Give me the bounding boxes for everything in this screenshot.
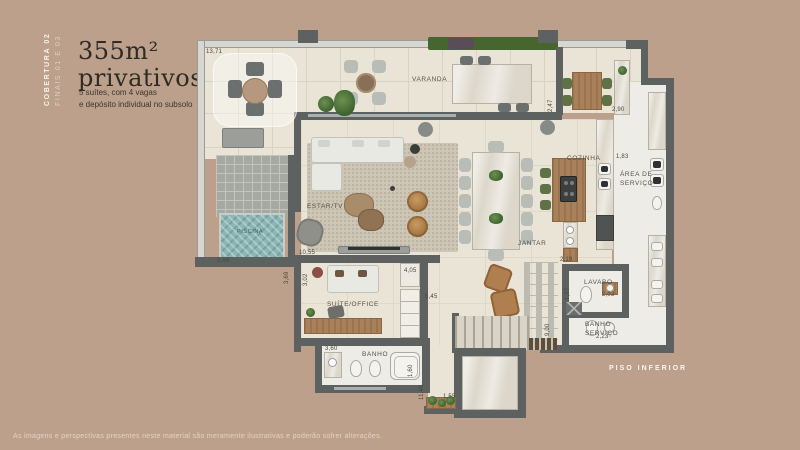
copa-plant: [618, 66, 627, 75]
breakfast-chair-4: [602, 95, 612, 106]
breakfast-chair-3: [602, 78, 612, 89]
potted-plant-1: [318, 96, 334, 112]
side-table: [404, 156, 416, 168]
dim-label: 5,45: [425, 294, 437, 300]
label-lavabo: LAVABO: [584, 279, 613, 286]
banho-sink: [328, 358, 337, 367]
black-pouf: [410, 144, 420, 154]
dim-label: 2,90: [612, 107, 624, 113]
dining-chair-head-n: [488, 141, 504, 153]
label-estar: ESTAR/TV: [307, 203, 343, 210]
lounge-table: [356, 73, 376, 93]
wall-topright-step-h: [641, 78, 668, 85]
dining-chair-l1: [459, 158, 471, 172]
servico-counter-top: [648, 92, 666, 150]
umbrella-chair-s: [246, 102, 264, 116]
wall-outer-top: [197, 40, 640, 48]
dim-label: 1,27: [565, 288, 571, 300]
dim-label: 2,19: [560, 257, 572, 263]
dim-label: 2,23: [596, 334, 608, 340]
lounge-chair-2: [372, 60, 386, 73]
label-area-servico-line2: SERVIÇO: [620, 180, 653, 189]
pool: [219, 213, 285, 259]
dim-label: 1,60: [408, 365, 414, 377]
cabinet-drawer-1: [651, 242, 663, 251]
dining-chair-l5: [459, 230, 471, 244]
suite-cabinet-upper: [400, 263, 420, 287]
bar-stool-4: [516, 103, 529, 112]
burner-1: [564, 181, 568, 185]
dryer-door: [653, 177, 661, 184]
page-title: 355m² privativos: [78, 38, 203, 92]
wall-entry-estar: [294, 112, 301, 212]
dim-label: 4,05: [404, 268, 416, 274]
table-plant-1: [489, 170, 503, 181]
wall-outer-right: [666, 78, 674, 348]
bottom-plant-1: [428, 396, 437, 405]
dim-label: 1,55: [443, 394, 455, 400]
bathtub-inner: [394, 356, 418, 378]
bar-stool-3: [498, 103, 511, 112]
oven-door-2: [601, 181, 608, 187]
toilet-icon: [350, 360, 362, 377]
burner-3: [564, 192, 568, 196]
island-stool-2: [540, 184, 551, 194]
desk-plant: [306, 308, 315, 317]
dim-label: 9,00: [545, 324, 551, 336]
title-area: 355m²: [78, 38, 203, 65]
column-round-2: [540, 120, 555, 135]
breakfast-chair-1: [562, 78, 572, 89]
burner-2: [570, 181, 574, 185]
wall-column-b: [538, 30, 558, 43]
bar-table: [452, 64, 532, 104]
label-suite: SUÍTE/OFFICE: [327, 301, 379, 308]
label-jantar: JANTAR: [518, 240, 546, 247]
label-varanda: VARANDA: [412, 76, 447, 83]
unit-tag: COBERTURA 02 FINAIS 01 E 03: [44, 36, 62, 106]
dim-label: 3,02: [303, 274, 309, 286]
bar-stool-2: [478, 56, 491, 65]
potted-plant-2: [334, 90, 355, 116]
dim-label: 13,71: [206, 49, 222, 55]
bidet-icon: [369, 360, 381, 377]
dim-label: 3,60: [325, 346, 337, 352]
daybed-pillow-1: [335, 270, 344, 277]
label-area-servico: ÁREA DESERVIÇO: [620, 171, 653, 189]
column-round-1: [418, 122, 433, 137]
island-stool-1: [540, 168, 551, 178]
wall-outer-left: [197, 40, 205, 262]
void-projection: [524, 262, 558, 340]
subtitle: 5 suítes, com 4 vagas e depósito individ…: [79, 87, 192, 112]
elevator-hall-floor: [462, 356, 518, 410]
sink-1: [566, 226, 574, 234]
unit-tag-line1: COBERTURA 02: [44, 36, 51, 106]
suite-side-table: [312, 267, 323, 278]
wall-column-a: [298, 30, 318, 43]
floor-lamp-icon: [390, 186, 395, 191]
lounge-chair-4: [372, 92, 386, 105]
umbrella-chair-e: [268, 80, 282, 98]
daybed-pillow-2: [358, 270, 367, 277]
cabinet-drawer-3: [651, 280, 663, 289]
sofa-chaise: [311, 163, 342, 191]
cabinet-drawer-4: [651, 294, 663, 303]
wall-suite-right: [420, 262, 428, 342]
wall-bottom-right: [540, 345, 674, 353]
wall-lavabo-top: [562, 264, 628, 271]
breakfast-table: [572, 72, 602, 110]
dining-table: [472, 152, 520, 250]
sofa-pillow-2: [352, 140, 364, 147]
bottom-plant-2: [438, 399, 446, 407]
dim-label: 1,83: [616, 154, 628, 160]
washer-door: [653, 161, 661, 168]
dining-chair-r1: [521, 158, 533, 172]
lounge-chair-1: [344, 60, 358, 73]
suite-daybed: [327, 265, 379, 293]
subtitle-line2: e depósito individual no subsolo: [79, 99, 192, 111]
island-stool-3: [540, 200, 551, 210]
disclaimer: As imagens e perspectivas presentes nest…: [13, 433, 382, 440]
dining-chair-l4: [459, 212, 471, 226]
leather-armchair-2: [489, 288, 520, 320]
pool-deck: [216, 155, 288, 217]
wall-pool-right: [288, 155, 295, 265]
fridge-icon: [596, 215, 614, 241]
lavabo-toilet: [580, 286, 592, 303]
label-cozinha: COZINHA: [567, 155, 600, 162]
dim-label: 3,69: [284, 272, 290, 284]
wall-pool-bottom: [195, 257, 301, 267]
stairs-down: [455, 316, 529, 350]
sliding-glass-door: [308, 114, 456, 117]
umbrella-table: [242, 78, 268, 104]
dim-label: 2,03: [602, 292, 614, 298]
sofa-pillow-3: [378, 140, 390, 147]
servico-tank-sink: [652, 196, 662, 210]
subtitle-line1: 5 suítes, com 4 vagas: [79, 87, 192, 99]
cooktop-icon: [560, 176, 577, 202]
bar-stool-1: [460, 56, 473, 65]
label-banho-servico-line1: BANHO: [585, 321, 618, 330]
coffee-table-2: [358, 209, 384, 231]
label-piscina: PISCINA: [237, 229, 263, 235]
planter-purple-plants: [448, 38, 474, 49]
dim-label: 2,96: [217, 258, 229, 264]
armchair-pouf-1: [407, 191, 428, 212]
dim-label: 11,46: [419, 384, 425, 400]
cabinet-drawer-2: [651, 258, 663, 267]
wall-estar-suite: [294, 255, 440, 263]
sofa-pillow-1: [318, 140, 330, 147]
sink-2: [566, 237, 574, 245]
dining-chair-l2: [459, 176, 471, 190]
shower-icon: [566, 302, 582, 315]
entry-console-item: [237, 132, 249, 143]
office-desk: [304, 318, 382, 334]
umbrella-chair-n: [246, 62, 264, 76]
dining-chair-l3: [459, 194, 471, 208]
tv-icon: [348, 247, 400, 250]
wall-lavabo-right: [622, 264, 629, 318]
stair-steps-small: [529, 338, 557, 350]
umbrella-chair-w: [228, 80, 242, 98]
label-area-servico-line1: ÁREA DE: [620, 171, 653, 180]
dining-chair-r3: [521, 194, 533, 208]
dim-label: 2,47: [548, 100, 554, 112]
unit-tag-line2: FINAIS 01 E 03: [55, 36, 62, 106]
banho-window: [334, 387, 386, 390]
dining-chair-r2: [521, 176, 533, 190]
dim-label: 10,55: [299, 250, 315, 256]
dining-chair-head-s: [488, 249, 504, 261]
armchair-pouf-2: [407, 216, 428, 237]
breakfast-chair-2: [562, 95, 572, 106]
suite-wardrobe: [400, 289, 420, 338]
burner-4: [570, 192, 574, 196]
label-banho: BANHO: [362, 351, 388, 358]
oven-door-1: [601, 166, 608, 172]
dining-chair-r4: [521, 212, 533, 226]
page: COBERTURA 02 FINAIS 01 E 03 355m² privat…: [0, 0, 800, 450]
piso-inferior-label: PISO INFERIOR: [609, 365, 687, 372]
table-plant-2: [489, 213, 503, 224]
